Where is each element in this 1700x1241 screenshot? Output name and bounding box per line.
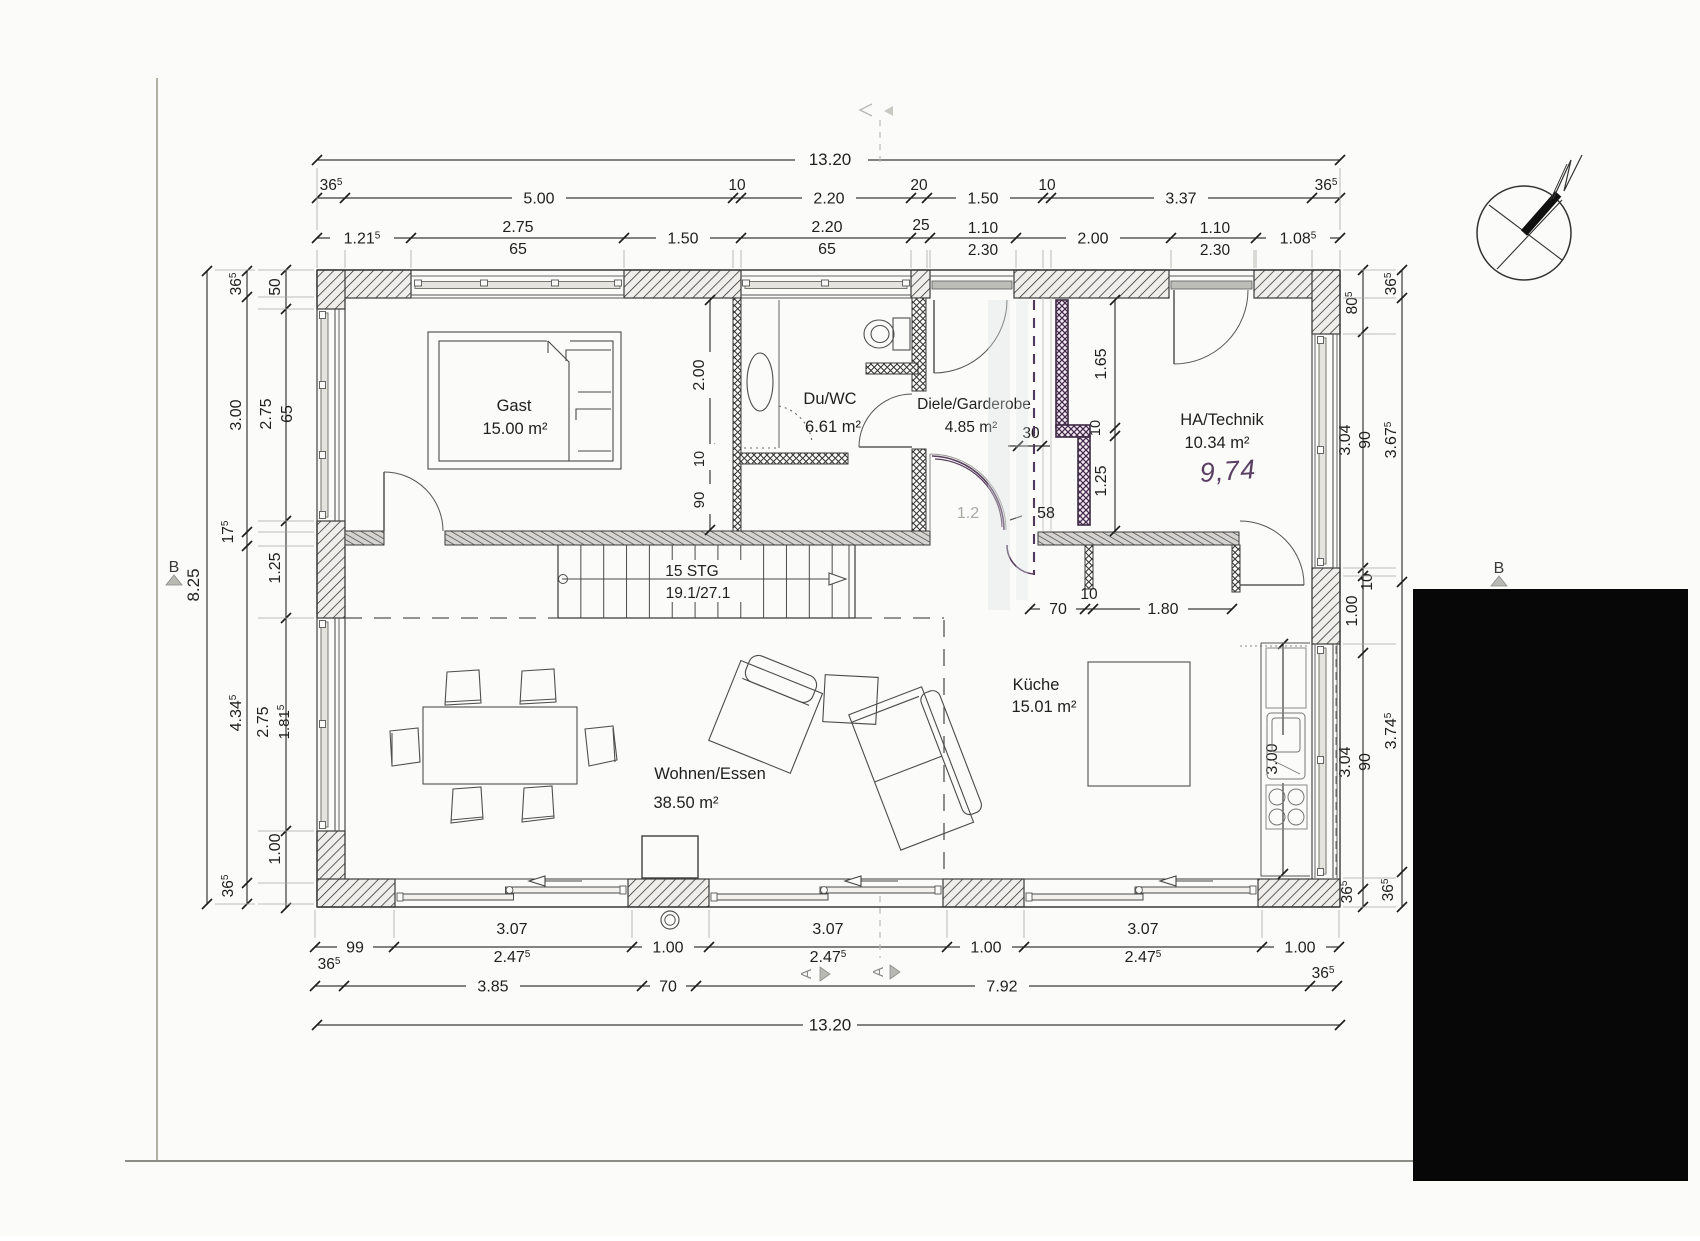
svg-text:3.85: 3.85 xyxy=(477,979,508,996)
svg-text:2.00: 2.00 xyxy=(691,359,708,390)
svg-text:Diele/Garderobe: Diele/Garderobe xyxy=(917,396,1031,413)
svg-text:2.75: 2.75 xyxy=(502,219,533,236)
svg-text:70: 70 xyxy=(659,979,677,996)
svg-text:10: 10 xyxy=(1080,586,1098,603)
svg-text:B: B xyxy=(169,559,180,576)
svg-text:70: 70 xyxy=(1049,601,1067,618)
svg-text:65: 65 xyxy=(279,405,296,423)
svg-text:1.65: 1.65 xyxy=(1093,348,1110,379)
svg-text:3.07: 3.07 xyxy=(1127,921,1158,938)
svg-text:15.01 m²: 15.01 m² xyxy=(1011,698,1077,716)
svg-text:10: 10 xyxy=(692,451,708,467)
svg-text:58: 58 xyxy=(1037,505,1055,522)
svg-text:99: 99 xyxy=(346,940,364,957)
svg-text:1.00: 1.00 xyxy=(652,940,683,957)
svg-text:8.25: 8.25 xyxy=(184,568,203,601)
svg-text:25: 25 xyxy=(912,217,929,234)
svg-text:1.25: 1.25 xyxy=(1093,465,1110,496)
svg-text:B: B xyxy=(1494,560,1505,577)
svg-text:1.50: 1.50 xyxy=(967,191,998,208)
svg-text:2.30: 2.30 xyxy=(1200,242,1231,259)
svg-text:15 STG: 15 STG xyxy=(665,563,718,580)
svg-text:65: 65 xyxy=(818,241,836,258)
svg-text:2.30: 2.30 xyxy=(968,242,999,259)
svg-text:13.20: 13.20 xyxy=(809,1016,852,1035)
svg-text:20: 20 xyxy=(910,177,928,194)
svg-text:1.25: 1.25 xyxy=(267,552,284,583)
svg-text:1.80: 1.80 xyxy=(1147,601,1178,618)
svg-text:Du/WC: Du/WC xyxy=(803,390,856,408)
svg-text:3.07: 3.07 xyxy=(812,921,843,938)
svg-text:1.00: 1.00 xyxy=(267,833,284,864)
svg-text:2.00: 2.00 xyxy=(1077,231,1108,248)
svg-text:1.00: 1.00 xyxy=(1344,595,1361,626)
svg-text:1.50: 1.50 xyxy=(667,231,698,248)
svg-text:65: 65 xyxy=(509,241,527,258)
svg-text:2.75: 2.75 xyxy=(258,398,275,429)
svg-text:3.00: 3.00 xyxy=(228,399,245,430)
svg-text:90: 90 xyxy=(691,492,708,509)
svg-text:19.1/27.1: 19.1/27.1 xyxy=(666,585,731,602)
svg-text:Wohnen/Essen: Wohnen/Essen xyxy=(654,765,766,783)
svg-text:7.92: 7.92 xyxy=(986,979,1017,996)
svg-text:10: 10 xyxy=(1038,177,1056,194)
svg-text:10: 10 xyxy=(728,177,746,194)
svg-text:A: A xyxy=(870,967,887,977)
svg-text:3.37: 3.37 xyxy=(1165,191,1196,208)
svg-text:15.00 m²: 15.00 m² xyxy=(482,420,548,438)
svg-text:6.61 m²: 6.61 m² xyxy=(805,418,861,436)
svg-text:50: 50 xyxy=(267,278,284,296)
svg-text:10.34 m²: 10.34 m² xyxy=(1184,434,1250,452)
svg-text:2.20: 2.20 xyxy=(813,191,844,208)
svg-text:1.2: 1.2 xyxy=(957,505,979,522)
svg-text:HA/Technik: HA/Technik xyxy=(1180,411,1264,429)
svg-text:38.50 m²: 38.50 m² xyxy=(653,794,719,812)
svg-text:1.10: 1.10 xyxy=(968,220,999,237)
svg-text:1.00: 1.00 xyxy=(1284,940,1315,957)
svg-text:Gast: Gast xyxy=(497,397,532,415)
svg-text:2.20: 2.20 xyxy=(811,219,842,236)
svg-text:Küche: Küche xyxy=(1013,676,1060,694)
svg-text:3.07: 3.07 xyxy=(496,921,527,938)
svg-text:9,74: 9,74 xyxy=(1199,454,1258,488)
svg-text:13.20: 13.20 xyxy=(809,150,852,169)
svg-text:5.00: 5.00 xyxy=(523,191,554,208)
svg-text:A: A xyxy=(798,969,815,979)
svg-text:2.75: 2.75 xyxy=(255,706,272,737)
svg-text:90: 90 xyxy=(1357,431,1374,449)
svg-text:1.10: 1.10 xyxy=(1200,220,1231,237)
svg-text:90: 90 xyxy=(1357,753,1374,771)
svg-text:1.00: 1.00 xyxy=(970,940,1001,957)
